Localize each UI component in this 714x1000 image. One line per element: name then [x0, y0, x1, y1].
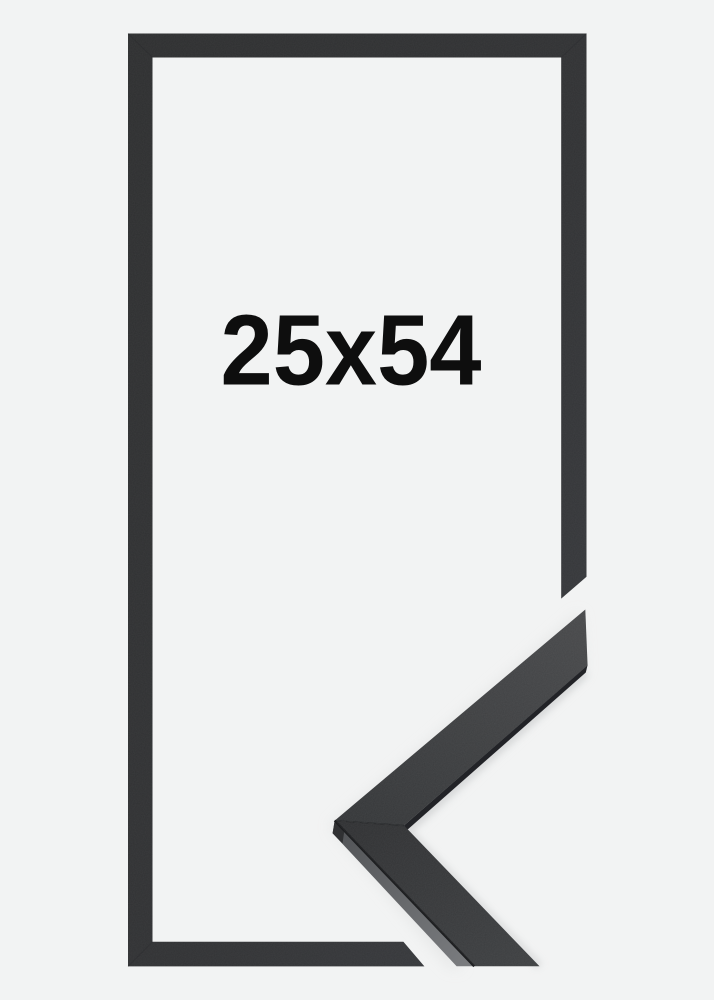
svg-text:25x54: 25x54: [221, 294, 482, 406]
